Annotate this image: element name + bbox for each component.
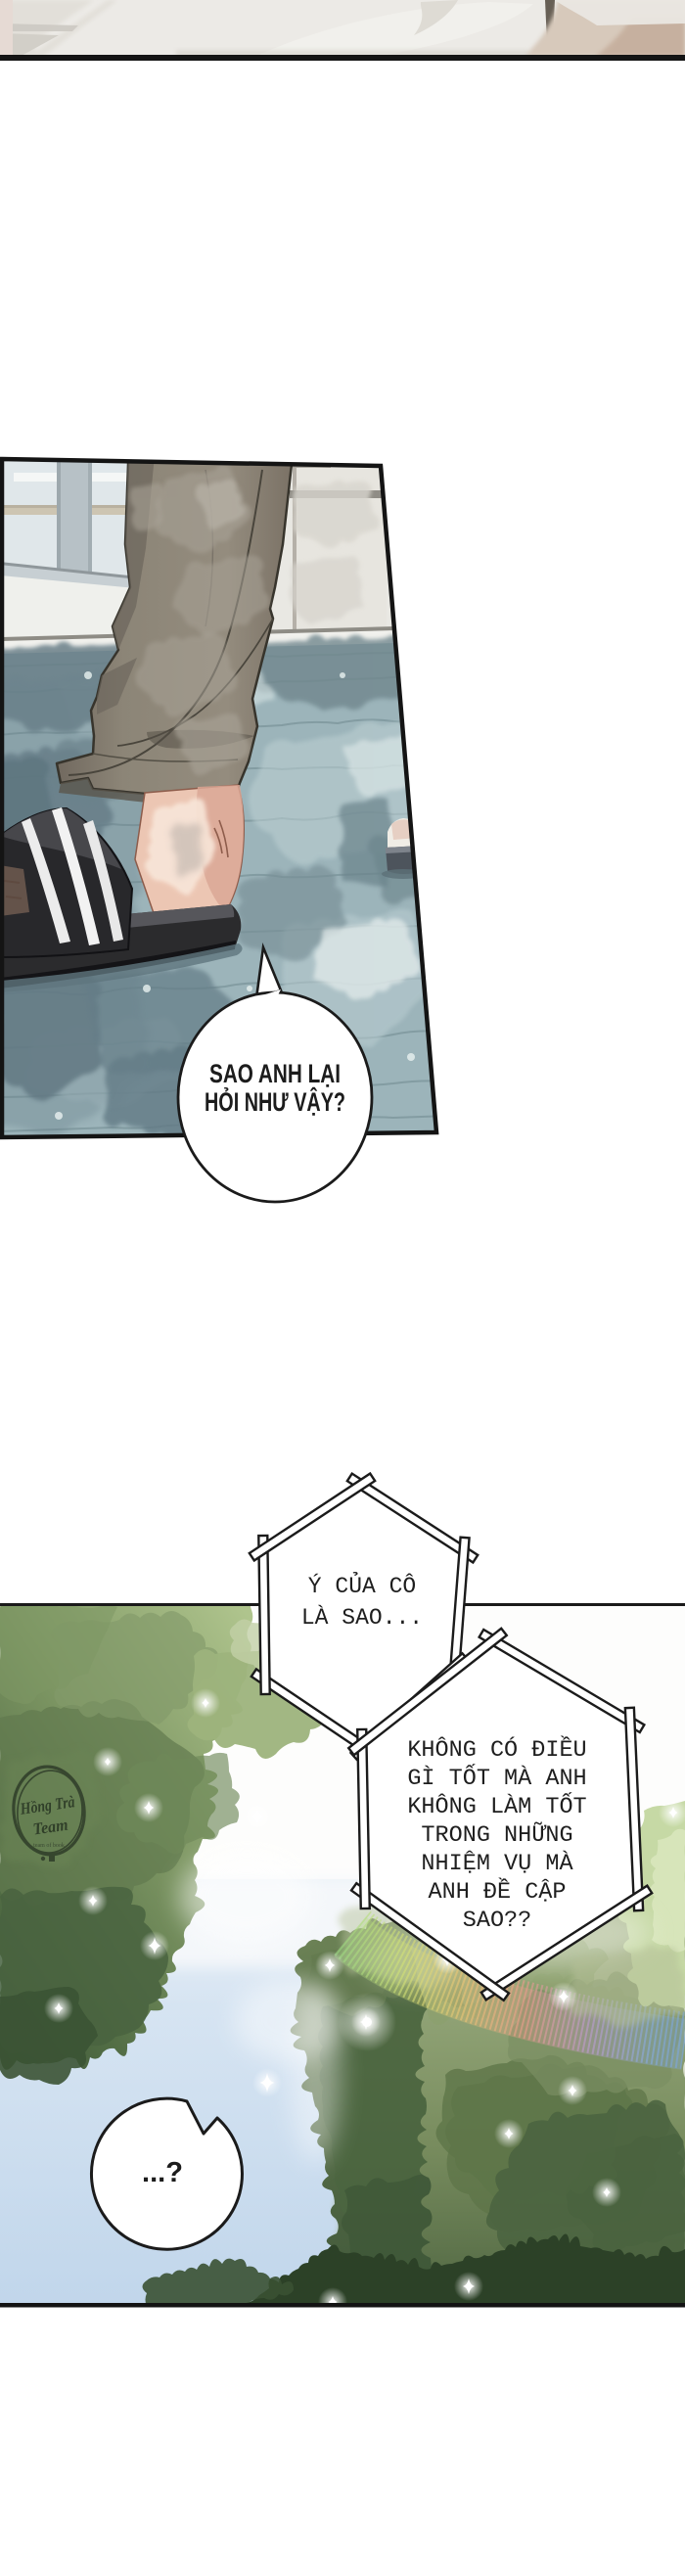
svg-text:...?: ...? xyxy=(142,2157,183,2188)
svg-text:SAO??: SAO?? xyxy=(463,1908,532,1934)
svg-text:LÀ SAO...: LÀ SAO... xyxy=(301,1604,423,1631)
svg-text:Ý CỦA CÔ: Ý CỦA CÔ xyxy=(308,1570,416,1599)
svg-text:SAO ANH LẠI: SAO ANH LẠI xyxy=(209,1059,341,1088)
svg-text:NHIỆM VỤ MÀ: NHIỆM VỤ MÀ xyxy=(421,1850,573,1877)
svg-text:TRONG NHỮNG: TRONG NHỮNG xyxy=(421,1821,572,1849)
svg-text:GÌ TỐT MÀ ANH: GÌ TỐT MÀ ANH xyxy=(407,1763,586,1792)
svg-text:HỎI NHƯ VẬY?: HỎI NHƯ VẬY? xyxy=(205,1085,345,1117)
svg-text:KHÔNG CÓ ĐIỀU: KHÔNG CÓ ĐIỀU xyxy=(407,1734,586,1764)
svg-text:team of book: team of book xyxy=(33,1842,65,1849)
svg-text:KHÔNG LÀM TỐT: KHÔNG LÀM TỐT xyxy=(407,1791,586,1820)
svg-text:ANH ĐỀ CẬP: ANH ĐỀ CẬP xyxy=(428,1876,566,1906)
